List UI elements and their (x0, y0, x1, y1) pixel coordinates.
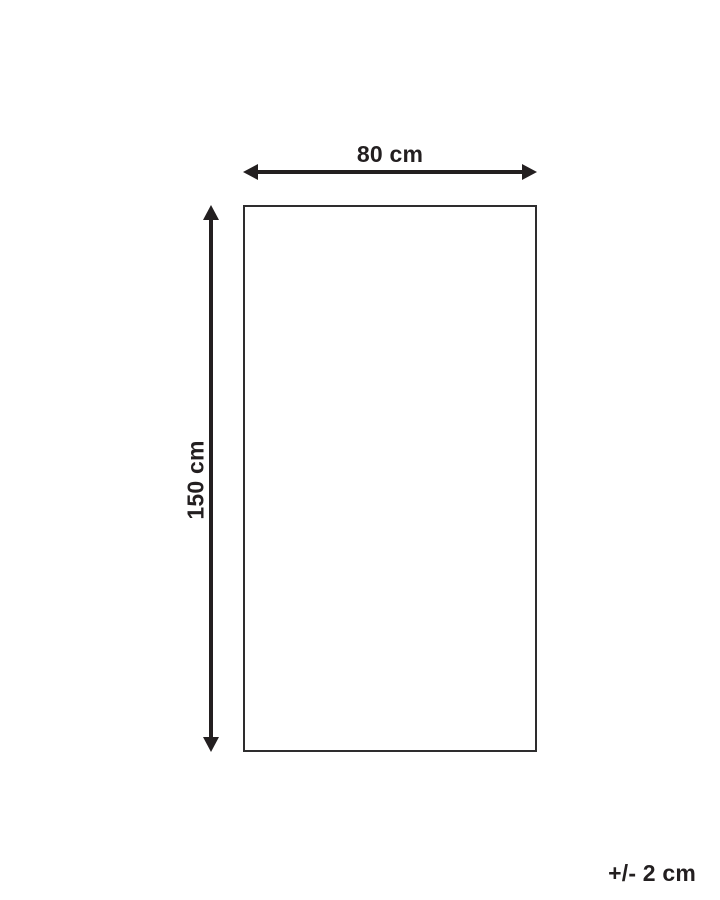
arrow-right-icon (522, 164, 537, 180)
height-arrow-line (209, 216, 213, 741)
width-dimension-arrow (243, 164, 537, 180)
arrow-down-icon (203, 737, 219, 752)
product-outline (243, 205, 537, 752)
tolerance-label: +/- 2 cm (608, 860, 696, 887)
width-arrow-line (254, 170, 526, 174)
height-dimension-arrow (203, 205, 219, 752)
dimension-diagram: 80 cm 150 cm +/- 2 cm (0, 0, 720, 900)
